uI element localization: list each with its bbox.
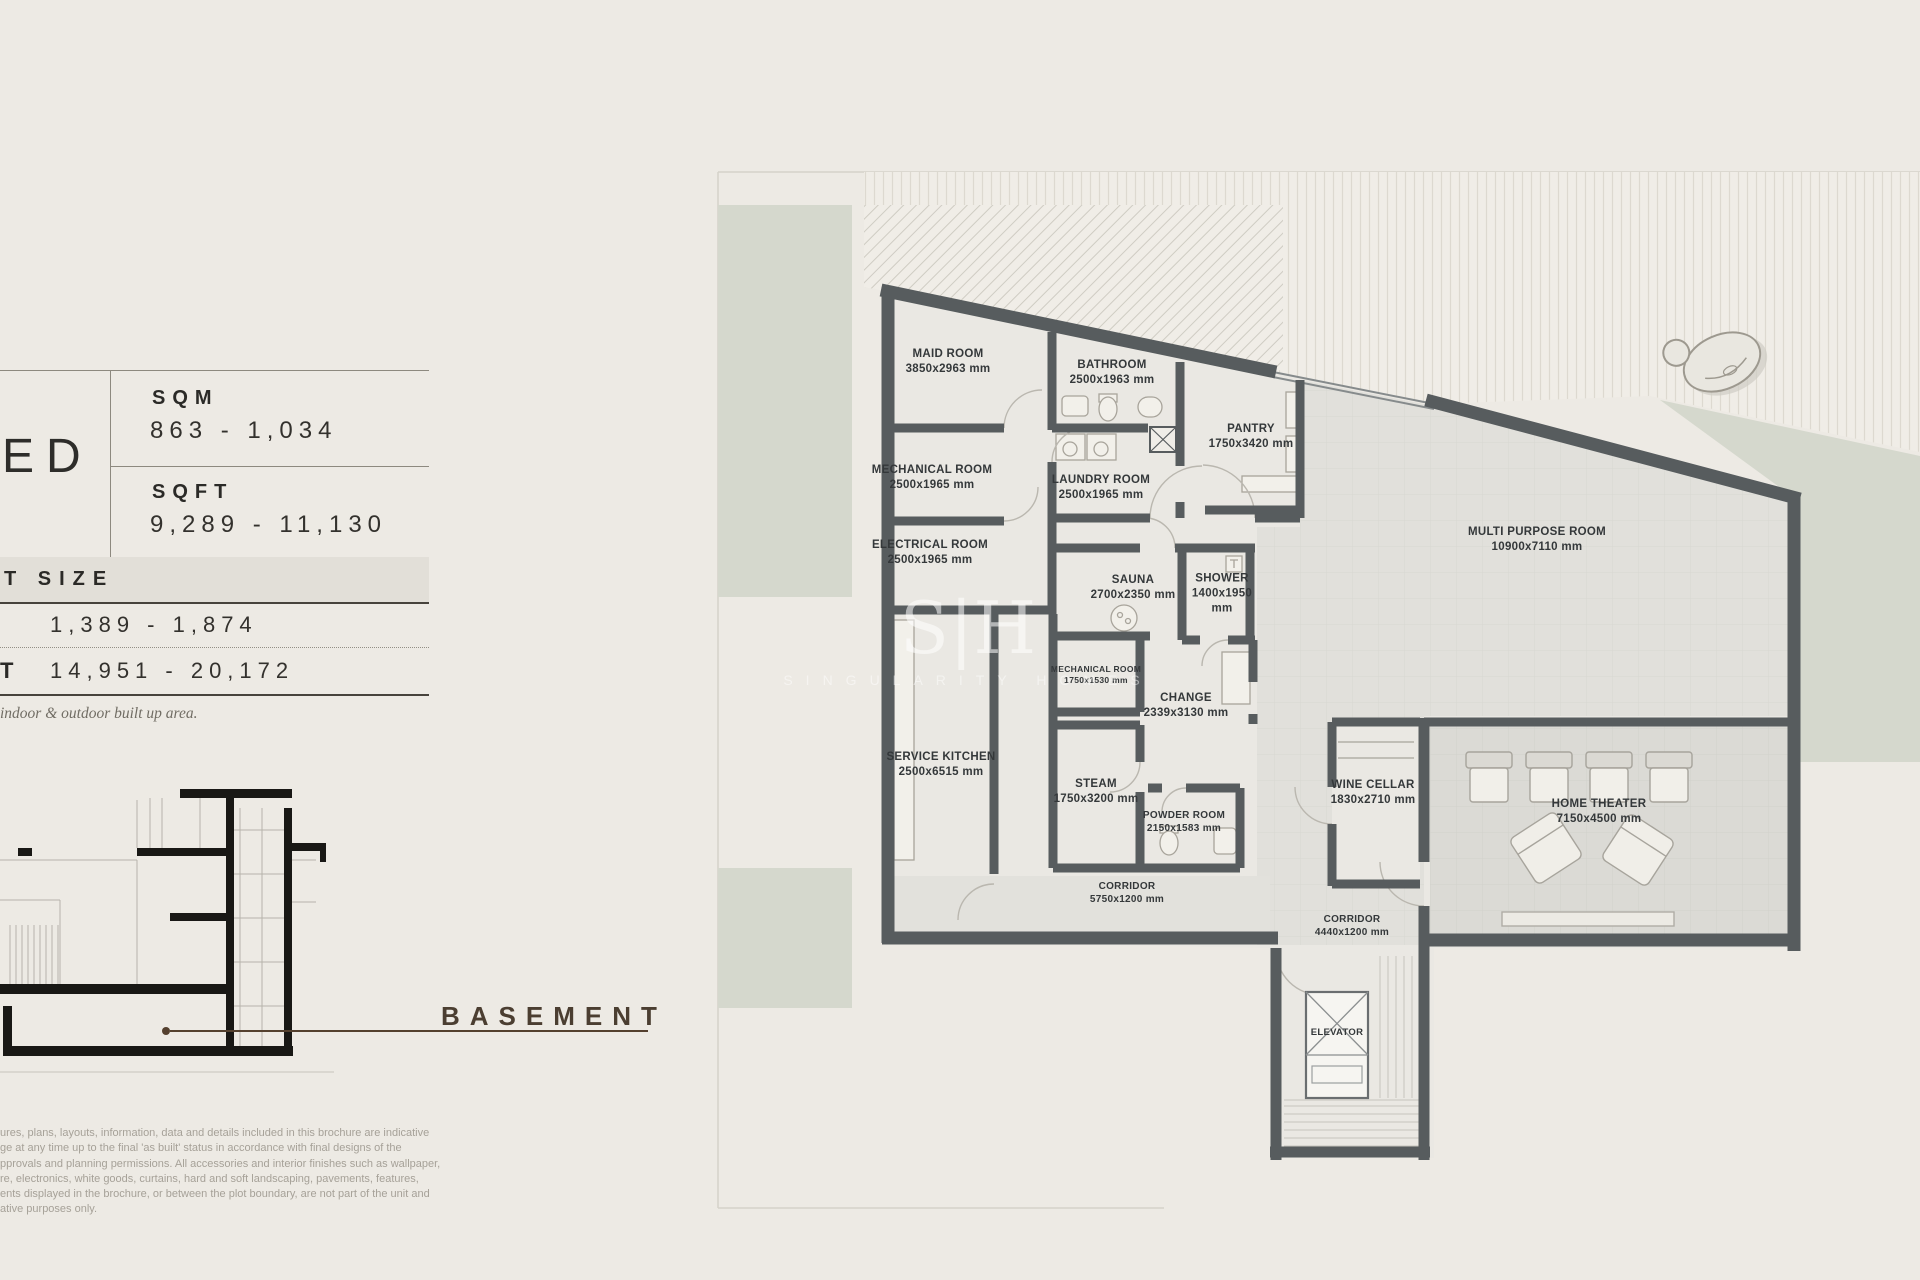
disclaimer-line: ative purposes only. (0, 1202, 452, 1217)
room-label-maid-room: MAID ROOM 3850x2963 mm (906, 347, 991, 377)
room-label-pantry: PANTRY 1750x3420 mm (1209, 422, 1294, 452)
room-name: MECHANICAL ROOM (1051, 664, 1141, 675)
room-label-laundry-room: LAUNDRY ROOM 2500x1965 mm (1052, 473, 1150, 503)
room-label-elevator: ELEVATOR (1311, 1027, 1364, 1039)
room-name: MULTI PURPOSE ROOM (1468, 525, 1606, 540)
plot-sqft-row: T 14,951 - 20,172 (0, 648, 429, 696)
unit-area-table: ED SQM 863 - 1,034 SQFT 9,289 - 11,130 (0, 370, 429, 559)
room-dims: 2339x3130 mm (1144, 706, 1229, 721)
room-label-steam: STEAM 1750x3200 mm (1054, 777, 1139, 807)
room-name: MECHANICAL ROOM (872, 463, 993, 478)
room-dims: 2500x1965 mm (872, 553, 988, 568)
area-footnote: indoor & outdoor built up area. (0, 705, 198, 723)
room-dims: 4440x1200 mm (1315, 926, 1389, 939)
plot-sqm-value: 1,389 - 1,874 (50, 602, 258, 647)
room-label-multi-purpose-room: MULTI PURPOSE ROOM 10900x7110 mm (1468, 525, 1606, 555)
room-dims: 2500x1965 mm (872, 478, 993, 493)
room-dims: 1750x1530 mm (1051, 675, 1141, 686)
room-dims: 2500x1963 mm (1070, 373, 1155, 388)
room-dims: 1400x1950 mm (1183, 587, 1261, 617)
room-name: HOME THEATER (1552, 797, 1647, 812)
disclaimer-text: ures, plans, layouts, information, data … (0, 1126, 452, 1218)
disclaimer-line: ures, plans, layouts, information, data … (0, 1126, 452, 1141)
sqft-label: SQFT (152, 481, 233, 504)
room-name: SAUNA (1091, 573, 1176, 588)
plot-sqm-row: 1,389 - 1,874 (0, 602, 429, 648)
disclaimer-line: ents displayed in the brochure, or betwe… (0, 1187, 452, 1202)
room-label-change: CHANGE 2339x3130 mm (1144, 691, 1229, 721)
room-label-wine-cellar: WINE CELLAR 1830x2710 mm (1331, 778, 1416, 808)
plot-sqft-prefix: T (0, 648, 15, 693)
room-label-corridor-1: CORRIDOR 5750x1200 mm (1090, 880, 1164, 906)
room-name: CORRIDOR (1090, 880, 1164, 893)
table-row-divider (110, 466, 429, 467)
floor-name-label: BASEMENT (441, 1001, 667, 1032)
room-dims: 1750x3200 mm (1054, 792, 1139, 807)
room-name: WINE CELLAR (1331, 778, 1416, 793)
green-patch-left (718, 205, 852, 597)
room-dims: 5750x1200 mm (1090, 893, 1164, 906)
room-dims: 3850x2963 mm (906, 362, 991, 377)
room-dims: 2150x1583 mm (1143, 822, 1225, 835)
room-name: SERVICE KITCHEN (886, 750, 995, 765)
room-name: BATHROOM (1070, 358, 1155, 373)
plot-size-header: T SIZE (0, 557, 429, 604)
duct-shaft (1150, 427, 1176, 452)
room-name: ELECTRICAL ROOM (872, 538, 988, 553)
room-label-sauna: SAUNA 2700x2350 mm (1091, 573, 1176, 603)
room-name: CORRIDOR (1315, 913, 1389, 926)
room-name: MAID ROOM (906, 347, 991, 362)
room-dims: 2500x1965 mm (1052, 488, 1150, 503)
disclaimer-line: ge at any time up to the final 'as built… (0, 1141, 452, 1156)
room-dims: 1750x3420 mm (1209, 437, 1294, 452)
room-label-mechanical-room-small: MECHANICAL ROOM 1750x1530 mm (1051, 664, 1141, 686)
room-dims: 2700x2350 mm (1091, 588, 1176, 603)
unit-type-label: ED (2, 429, 93, 484)
disclaimer-line: re, electronics, white goods, curtains, … (0, 1172, 452, 1187)
plot-size-title: T SIZE (4, 557, 114, 602)
sqm-label: SQM (152, 387, 219, 410)
corridor-floor (888, 876, 1270, 936)
table-divider (110, 371, 111, 558)
room-name: LAUNDRY ROOM (1052, 473, 1150, 488)
room-name: SHOWER (1183, 572, 1261, 587)
room-label-shower: SHOWER 1400x1950 mm (1183, 572, 1261, 617)
room-label-electrical-room: ELECTRICAL ROOM 2500x1965 mm (872, 538, 988, 568)
brochure-page: ED SQM 863 - 1,034 SQFT 9,289 - 11,130 T… (0, 0, 1920, 1280)
disclaimer-line: pprovals and planning permissions. All a… (0, 1157, 452, 1172)
room-dims: 7150x4500 mm (1552, 812, 1647, 827)
room-name: PANTRY (1209, 422, 1294, 437)
room-name: STEAM (1054, 777, 1139, 792)
room-label-corridor-2: CORRIDOR 4440x1200 mm (1315, 913, 1389, 939)
sqm-value: 863 - 1,034 (150, 417, 337, 445)
room-name: POWDER ROOM (1143, 809, 1225, 822)
theater-screen (1502, 912, 1674, 926)
room-name: ELEVATOR (1311, 1027, 1364, 1039)
green-patch-bottom-left (718, 868, 852, 1008)
room-label-powder-room: POWDER ROOM 2150x1583 mm (1143, 809, 1225, 835)
room-dims: 1830x2710 mm (1331, 793, 1416, 808)
room-label-bathroom: BATHROOM 2500x1963 mm (1070, 358, 1155, 388)
room-label-home-theater: HOME THEATER 7150x4500 mm (1552, 797, 1647, 827)
room-dims: 10900x7110 mm (1468, 540, 1606, 555)
plot-sqft-value: 14,951 - 20,172 (50, 648, 294, 693)
room-dims: 2500x6515 mm (886, 765, 995, 780)
room-label-mechanical-room: MECHANICAL ROOM 2500x1965 mm (872, 463, 993, 493)
room-label-service-kitchen: SERVICE KITCHEN 2500x6515 mm (886, 750, 995, 780)
sqft-value: 9,289 - 11,130 (150, 511, 387, 539)
elevator-shaft (1306, 992, 1368, 1098)
room-name: CHANGE (1144, 691, 1229, 706)
